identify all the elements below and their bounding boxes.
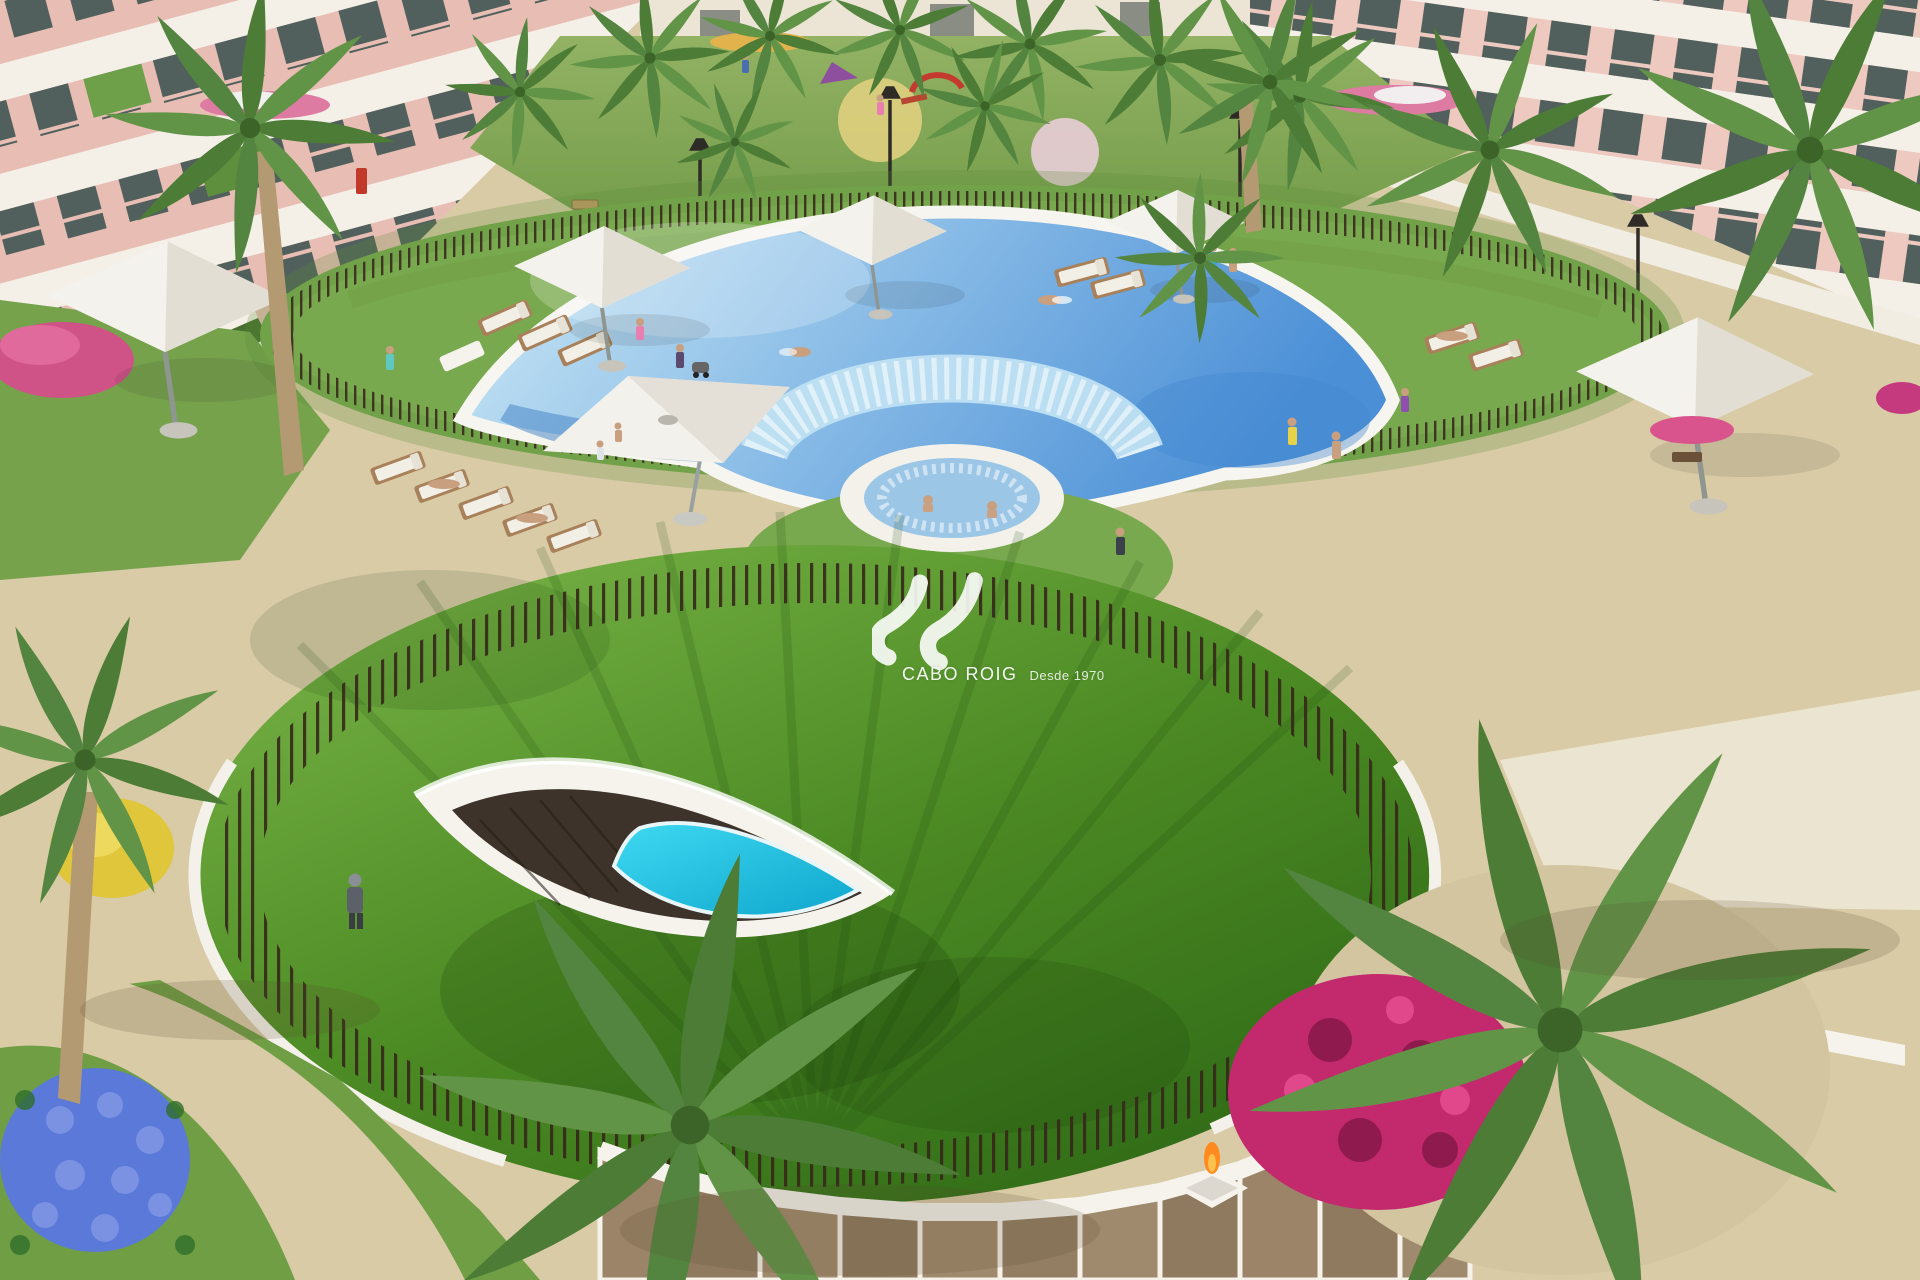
man-on-roof: [347, 874, 363, 930]
spa-circle: [840, 444, 1064, 552]
red-bin: [356, 168, 367, 194]
render-aerial-resort-view: CABO ROIGDesde 1970: [0, 0, 1920, 1280]
scene-illustration: [0, 0, 1920, 1280]
